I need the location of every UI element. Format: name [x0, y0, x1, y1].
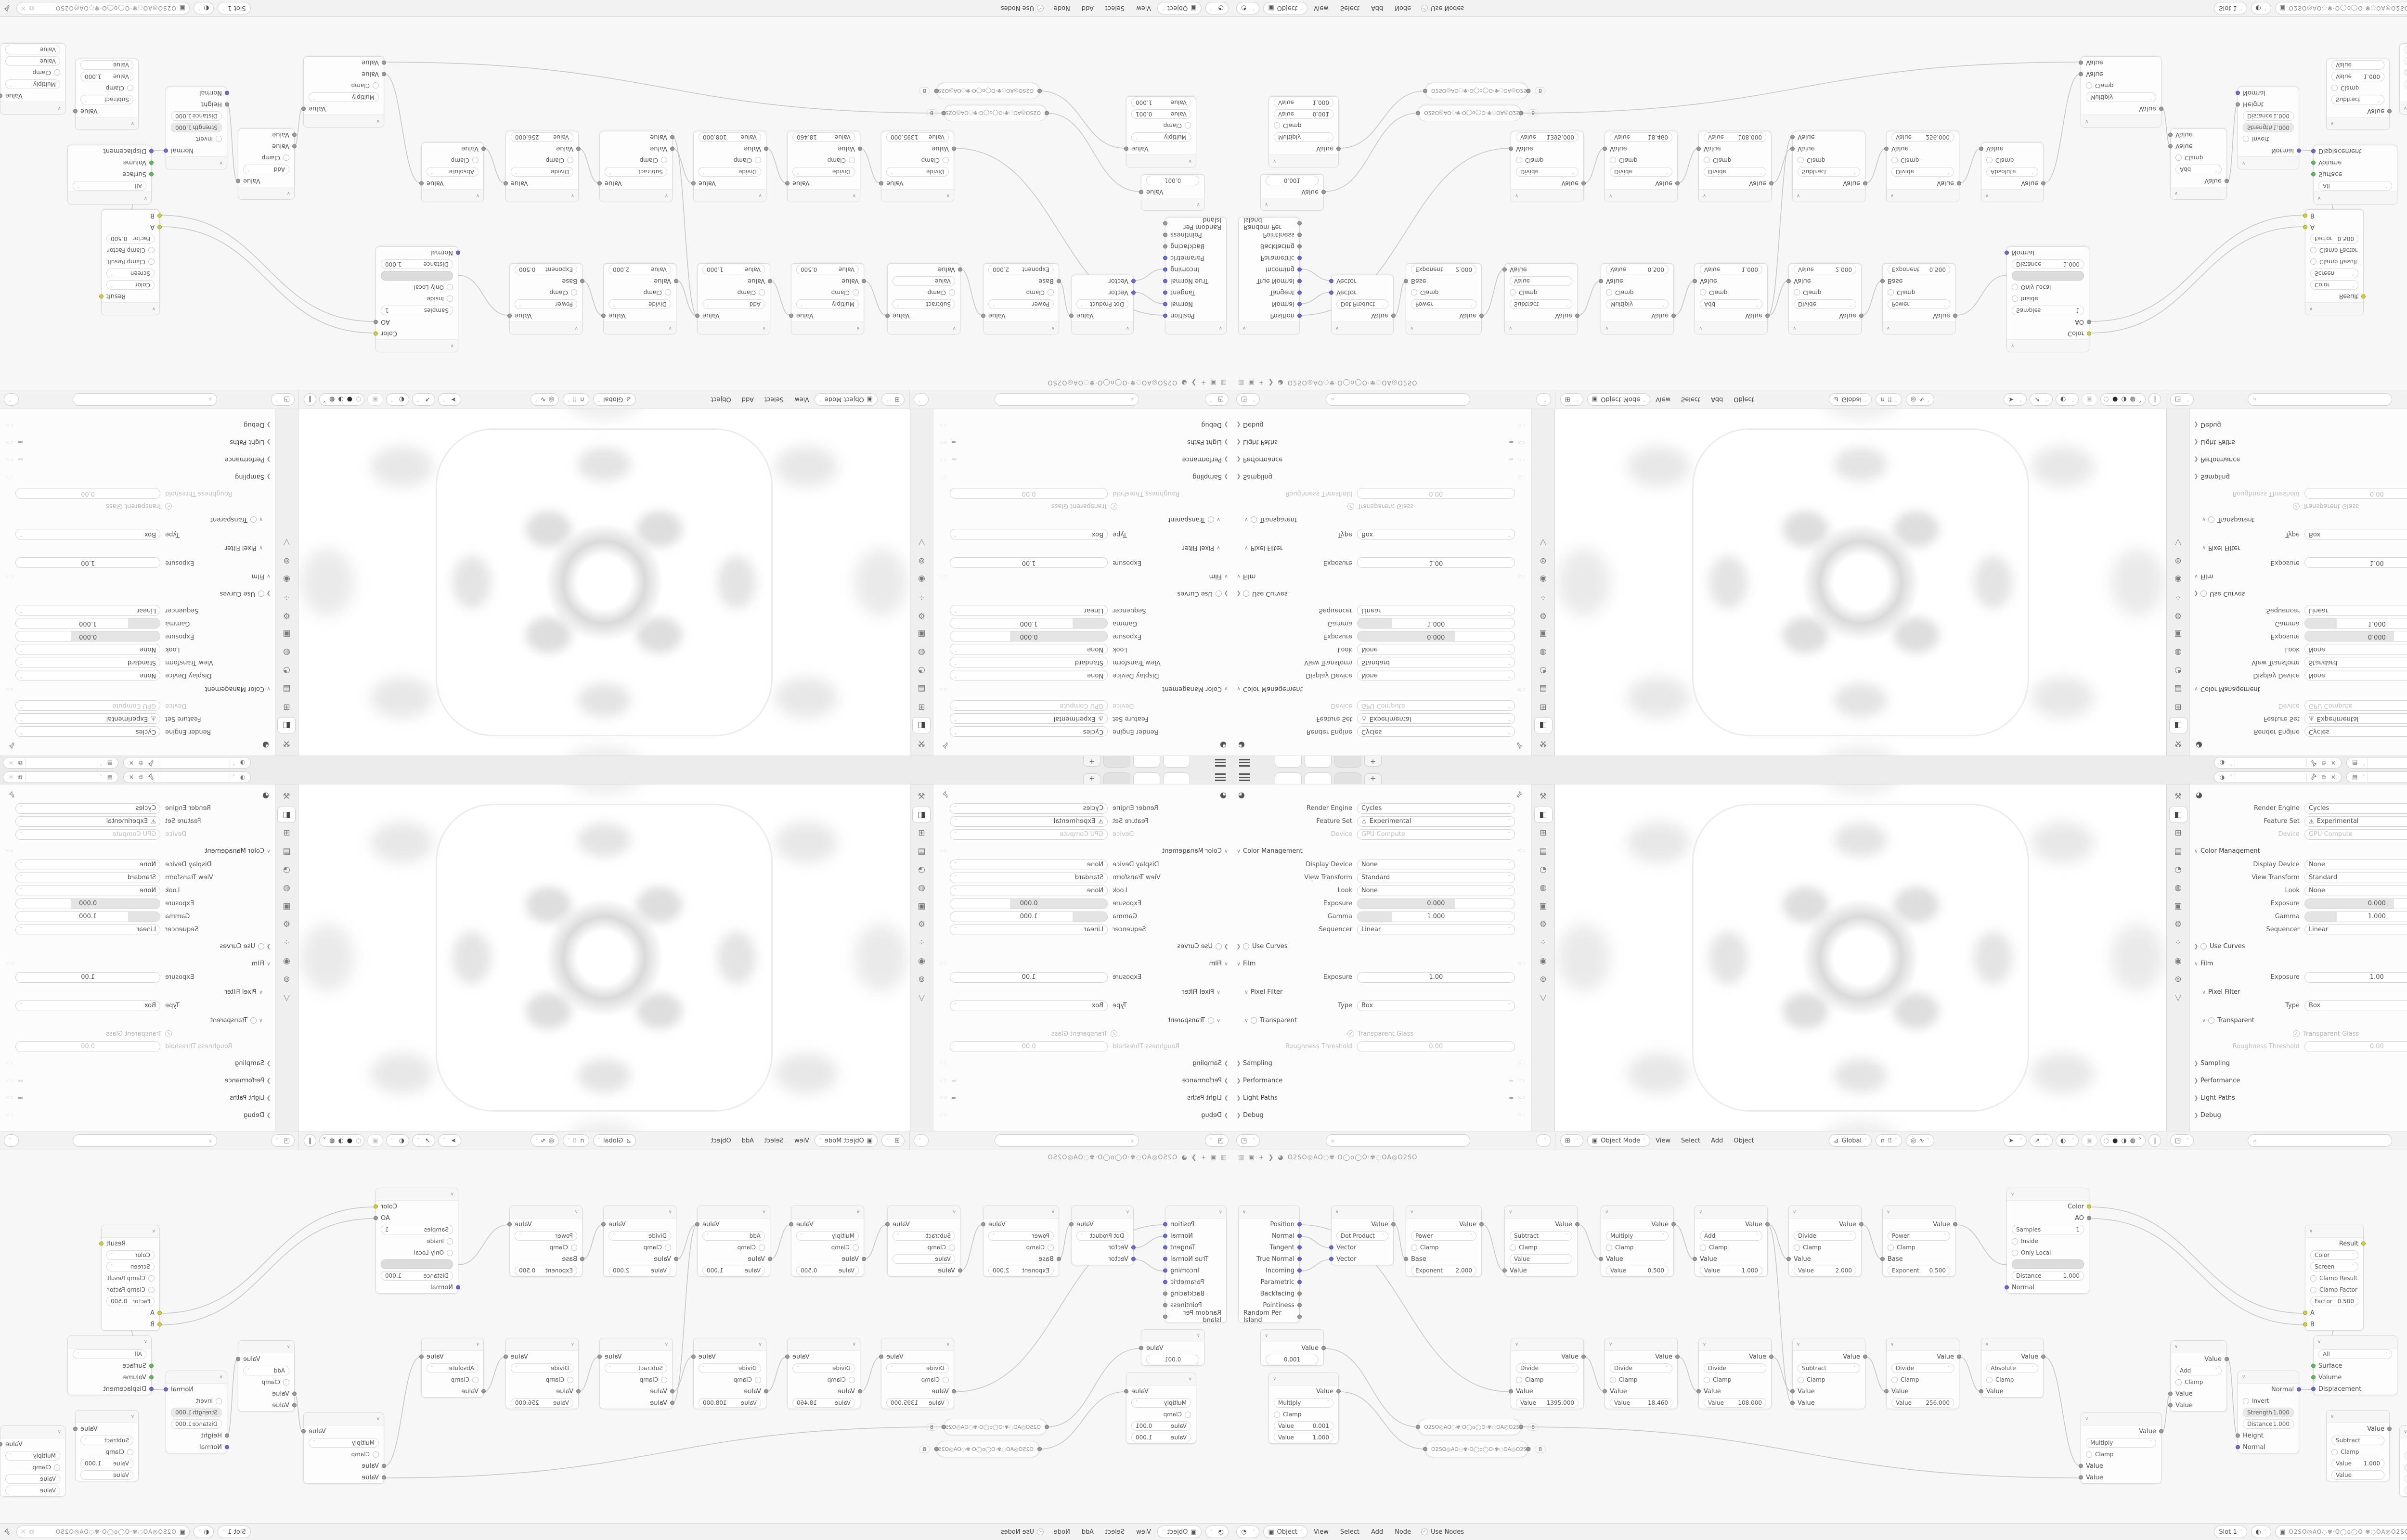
checkbox-clamp[interactable]: Clamp — [2175, 154, 2203, 161]
node[interactable]: ∨Value0.001 — [1141, 174, 1204, 211]
menu-object[interactable]: Object — [705, 1137, 736, 1144]
node-header[interactable]: ∨ — [422, 1338, 483, 1351]
node[interactable]: ∨ValueSubtract˅ClampValue1.000Value — [2326, 1410, 2390, 1481]
output-socket[interactable] — [2087, 332, 2091, 336]
panel-header-light-paths[interactable]: ❯Light Paths≔⁙⁙ — [938, 1091, 1230, 1105]
collapsed-group-node[interactable]: O2SO◎AO◌✾·O◯o◯O·✾◌OA◎O2SO8 — [1425, 1441, 1528, 1457]
node[interactable]: ∨ValueAbsolute˅ClampValue — [421, 1338, 484, 1398]
output-socket[interactable] — [597, 1355, 602, 1359]
shading-rendered-icon[interactable]: ◍ — [2130, 1137, 2135, 1144]
slider-gamma[interactable]: 1.000 — [950, 911, 1108, 922]
select-type[interactable]: Box˅ — [950, 529, 1108, 540]
checkbox-clamp[interactable]: Clamp — [1700, 289, 1727, 296]
checkbox-clamp[interactable]: Clamp — [2331, 1449, 2359, 1455]
pin-icon[interactable] — [942, 742, 950, 749]
panel-header-color-management[interactable]: ∨Color Management⁙⁙ — [2192, 844, 2407, 858]
material-id-selector[interactable]: ◑ ˅ ⧉ ✕ — [2214, 771, 2342, 783]
node-select[interactable]: Multiply˅ — [2405, 79, 2407, 89]
node-header[interactable]: ∨ — [304, 115, 384, 127]
shader-node-editor[interactable]: ▥ ▣ + ❯ ◕ O2SO◎AO◌✾·O◯o◯O·✾◌OA◎O2SO ∨Pos… — [1232, 17, 2407, 390]
input-socket[interactable] — [292, 1392, 297, 1396]
checkbox-clamp[interactable]: Clamp — [2086, 1451, 2113, 1458]
checkbox-clamp[interactable]: Clamp — [1411, 1244, 1438, 1251]
search-input[interactable]: ⌕ — [2248, 1134, 2392, 1147]
checkbox-invert[interactable]: Invert — [2243, 1398, 2269, 1404]
output-socket[interactable] — [1139, 190, 1143, 194]
field-distance[interactable]: Distance1.000 — [2243, 1419, 2294, 1429]
panel-header-performance[interactable]: ❯Performance≔⁙⁙ — [938, 1073, 1230, 1088]
output-socket[interactable] — [1139, 1346, 1143, 1350]
node[interactable]: ∨All˅SurfaceVolumeDisplacement — [67, 1335, 152, 1395]
output-socket[interactable] — [981, 314, 985, 318]
checkbox-clamp[interactable]: Clamp — [640, 157, 667, 164]
gizmo-dropdown[interactable]: ↗ ˅ — [2030, 1134, 2053, 1147]
node-select[interactable]: Divide˅ — [699, 1363, 761, 1373]
panel-header-use-curves[interactable]: ❯Use Curves — [938, 939, 1230, 953]
checkbox-clamp[interactable]: Clamp — [738, 289, 765, 296]
output-socket[interactable] — [1163, 1245, 1167, 1250]
properties-tab-data[interactable]: ▽ — [278, 534, 296, 551]
properties-tab-render[interactable]: ◧ — [2169, 717, 2187, 733]
node[interactable]: ∨ValueMultiply˅ClampValueValue — [303, 56, 384, 128]
select-render-engine[interactable]: Cycles˅ — [2304, 727, 2407, 737]
input-socket[interactable] — [670, 1401, 674, 1405]
shading-solid-icon[interactable]: ● — [347, 1137, 352, 1144]
output-socket[interactable] — [1957, 181, 1961, 186]
node[interactable]: ∨ValueSubtract˅ClampValueValue — [599, 131, 673, 202]
properties-tab-output[interactable]: ⊞ — [278, 699, 296, 715]
input-socket[interactable] — [2168, 144, 2173, 149]
field-value[interactable]: Value — [80, 1470, 133, 1480]
field-value[interactable]: Value1.000 — [1700, 1266, 1762, 1275]
shader-type-dropdown[interactable]: ▣ Object ˅ — [1157, 1526, 1202, 1538]
menu-view[interactable]: View — [1650, 396, 1676, 403]
properties-tab-view-layer[interactable]: ▤ — [278, 843, 296, 860]
node[interactable]: ∨ResultColor˅Screen˅Clamp ResultClamp Fa… — [2305, 1225, 2364, 1331]
panel-header-light-paths[interactable]: ❯Light Paths≔⁙⁙ — [2192, 435, 2407, 449]
panel-header-sampling[interactable]: ❯Sampling⁙⁙ — [938, 1056, 1230, 1070]
panel-header-use-curves[interactable]: ❯Use Curves — [2192, 939, 2407, 953]
copy-icon[interactable]: ⧉ — [2319, 759, 2329, 767]
node-header[interactable]: ∨ — [881, 1338, 954, 1351]
node-select[interactable]: Add˅ — [702, 299, 765, 309]
checkbox-clamp[interactable]: Clamp — [451, 1376, 479, 1383]
select-view-transform[interactable]: Standard˅ — [15, 657, 160, 668]
field-value[interactable]: Value108.000 — [699, 1398, 761, 1408]
node[interactable]: ∨ValueMultiply˅ClampValueValue — [2081, 1412, 2161, 1484]
properties-editor-type-button[interactable]: ◳ ˅ — [2170, 393, 2194, 406]
shading-solid-icon[interactable]: ● — [2112, 1137, 2118, 1144]
node[interactable]: ∨ValueDivide˅ClampValueValue108.000 — [693, 1338, 766, 1409]
input-socket[interactable] — [1790, 135, 1795, 140]
color-swatch[interactable] — [381, 271, 453, 281]
use-nodes-checkbox[interactable]: ✓ Use Nodes — [1001, 5, 1044, 12]
material-sphere-icon[interactable]: ◑ — [2217, 759, 2227, 766]
properties-tab-output[interactable]: ⊞ — [1534, 825, 1553, 841]
node-select[interactable]: Power˅ — [515, 1231, 577, 1241]
add-workspace-button[interactable]: + — [1083, 773, 1100, 784]
panel-header-sampling[interactable]: ❯Sampling⁙⁙ — [5, 1056, 273, 1070]
menu-view[interactable]: View — [1308, 1528, 1334, 1536]
node-header[interactable]: ∨ — [510, 1206, 582, 1219]
node-select[interactable]: Multiply˅ — [1131, 132, 1191, 142]
properties-tab-scene[interactable]: ◔ — [1534, 662, 1553, 679]
output-socket[interactable] — [2159, 107, 2163, 111]
properties-tab-scene[interactable]: ◔ — [278, 662, 296, 679]
properties-tab-constraints[interactable]: ⊚ — [278, 971, 296, 988]
field-value[interactable]: Value108.000 — [1704, 132, 1766, 142]
input-socket[interactable] — [225, 91, 229, 95]
image-id-selector[interactable]: ▤ ˅ ⧉ ✕ — [2346, 757, 2407, 769]
output-socket[interactable] — [1163, 1269, 1167, 1273]
input-socket[interactable] — [2236, 91, 2240, 95]
material-name-field[interactable] — [2235, 773, 2307, 782]
checkbox-clamp[interactable]: Clamp — [1606, 289, 1633, 296]
output-socket[interactable] — [2297, 1387, 2301, 1392]
panel-header-sampling[interactable]: ❯Sampling⁙⁙ — [2192, 470, 2407, 484]
menu-select[interactable]: Select — [1335, 1528, 1365, 1536]
input-socket[interactable] — [1131, 1245, 1136, 1250]
workspace-tab[interactable] — [1163, 772, 1190, 784]
panel-header-color-management[interactable]: ∨Color Management⁙⁙ — [1234, 844, 1527, 858]
checkbox-clamp[interactable]: Clamp — [1026, 1244, 1054, 1251]
slider-gamma[interactable]: 1.000 — [1357, 618, 1515, 629]
checkbox-clamp[interactable]: Clamp — [1274, 122, 1301, 129]
output-socket[interactable] — [1163, 1315, 1167, 1319]
properties-editor-type-button[interactable]: ◳ ˅ — [2170, 1134, 2194, 1147]
node[interactable]: ∨ValueMultiply˅ClampValue0.001Value1.000 — [1126, 1373, 1196, 1444]
output-socket[interactable] — [1297, 256, 1302, 260]
checkbox-clamp[interactable]: Clamp — [644, 289, 671, 296]
properties-tab-constraints[interactable]: ⊚ — [913, 552, 931, 569]
properties-tab-output[interactable]: ⊞ — [913, 825, 931, 841]
node-select[interactable]: Divide˅ — [699, 167, 761, 177]
field-value[interactable]: Value1.000 — [80, 1459, 133, 1468]
checkbox-clamp[interactable]: Clamp — [1891, 157, 1919, 164]
node-select[interactable]: Power˅ — [1888, 1231, 1950, 1241]
output-socket[interactable] — [1163, 1234, 1167, 1238]
field-strength[interactable]: Strength1.000 — [2243, 123, 2294, 132]
image-icon[interactable]: ▤ — [2350, 774, 2360, 781]
node-header[interactable]: ∨ — [2305, 302, 2363, 315]
unlink-icon[interactable]: ✕ — [21, 5, 26, 12]
properties-tab-tool[interactable]: ⚒ — [1534, 788, 1553, 805]
select-tool-dropdown[interactable]: ➤ ˅ — [438, 393, 461, 406]
field-value[interactable]: Value1.000 — [1131, 1433, 1191, 1442]
proportional-edit-toggle[interactable]: ◎ ∿ ˅ — [1906, 393, 1934, 406]
output-socket[interactable] — [1297, 1269, 1302, 1273]
select-sequencer[interactable]: Linear˅ — [2304, 924, 2407, 935]
select-feature-set[interactable]: ⚠Experimental˅ — [15, 714, 160, 724]
node-header[interactable]: ∨ — [888, 321, 960, 334]
search-input[interactable]: ⌕ — [1326, 1134, 1470, 1147]
node-header[interactable]: ∨ — [788, 189, 860, 202]
node-header[interactable]: ∨ — [2171, 187, 2226, 199]
properties-editor-type-button[interactable]: ◳ ˅ — [271, 393, 295, 406]
output-socket[interactable] — [695, 314, 699, 318]
node[interactable]: ∨ValueSubtract˅ClampValueValue — [1792, 131, 1865, 202]
node-header[interactable]: ∨ — [506, 1338, 578, 1351]
panel-header-light-paths[interactable]: ❯Light Paths≔⁙⁙ — [5, 1091, 273, 1105]
output-socket[interactable] — [2087, 320, 2091, 324]
input-socket[interactable] — [670, 1389, 674, 1394]
shading-rendered-icon[interactable]: ◍ — [329, 396, 335, 403]
select-display-device[interactable]: None˅ — [15, 670, 160, 681]
panel-header-color-management[interactable]: ∨Color Management⁙⁙ — [938, 844, 1230, 858]
radio-toggle[interactable] — [2200, 591, 2207, 597]
output-socket[interactable] — [1765, 314, 1770, 318]
node[interactable]: ∨ValueDivide˅ClampValueValue18.460 — [1605, 1338, 1678, 1409]
select-device[interactable]: GPU Compute˅ — [2304, 701, 2407, 711]
properties-tab-tool[interactable]: ⚒ — [278, 735, 296, 752]
select-display-device[interactable]: None˅ — [2304, 860, 2407, 870]
output-socket[interactable] — [1163, 314, 1167, 318]
node-header[interactable]: ∨ — [694, 1338, 766, 1351]
panel-header-sampling[interactable]: ❯Sampling⁙⁙ — [938, 470, 1230, 484]
field-factor[interactable]: Factor0.500 — [2310, 234, 2358, 244]
select-feature-set[interactable]: ⚠Experimental˅ — [2304, 714, 2407, 724]
properties-tab-render[interactable]: ◧ — [913, 807, 931, 823]
node-header[interactable]: ∨ — [2238, 156, 2299, 169]
node-select[interactable]: Multiply˅ — [2086, 1438, 2156, 1448]
viewport-3d[interactable] — [1555, 784, 2166, 1131]
node[interactable]: ∨ColorAOSamples1InsideOnly LocalDistance… — [2006, 246, 2089, 352]
field-value[interactable]: Value — [2331, 60, 2384, 70]
node-select[interactable]: Power˅ — [1411, 299, 1476, 309]
node[interactable]: ∨ValueMultiply˅ClampValueValue0.500 — [791, 263, 864, 334]
input-socket[interactable] — [1404, 1257, 1408, 1261]
chevron-down-icon[interactable]: ˅ — [230, 774, 238, 781]
properties-tab-physics[interactable]: ◉ — [278, 571, 296, 587]
output-socket[interactable] — [1336, 1389, 1341, 1394]
pin-icon[interactable] — [2307, 773, 2319, 782]
output-socket[interactable] — [1391, 1222, 1396, 1227]
properties-tab-modifiers[interactable]: ⚙ — [278, 607, 296, 624]
pin-icon[interactable] — [4, 1528, 12, 1536]
input-socket[interactable] — [1329, 1257, 1333, 1261]
properties-tab-data[interactable]: ▽ — [278, 989, 296, 1006]
panel-header-performance[interactable]: ❯Performance≔⁙⁙ — [2192, 1073, 2407, 1088]
radio-toggle[interactable] — [258, 591, 264, 597]
select-look[interactable]: None˅ — [15, 885, 160, 896]
field-value[interactable]: Value1395.000 — [886, 132, 949, 142]
properties-tab-output[interactable]: ⊞ — [2169, 699, 2187, 715]
node[interactable]: ∨ResultColor˅Screen˅Clamp ResultClamp Fa… — [2305, 209, 2364, 315]
select-type[interactable]: Box˅ — [2304, 1001, 2407, 1011]
select-render-engine[interactable]: Cycles˅ — [950, 803, 1108, 814]
output-socket[interactable] — [789, 314, 793, 318]
properties-tab-scene[interactable]: ◔ — [1534, 861, 1553, 878]
checkbox-transparent-glass[interactable]: ✓Transparent Glass — [5, 500, 273, 513]
output-socket[interactable] — [236, 179, 240, 183]
input-socket[interactable] — [149, 149, 154, 154]
overlays-dropdown[interactable]: ◐ ˅ — [2056, 393, 2079, 406]
node-header[interactable]: ∨ — [1072, 1206, 1133, 1219]
input-socket[interactable] — [952, 1389, 956, 1394]
output-socket[interactable] — [1575, 1222, 1579, 1227]
menu-add[interactable]: Add — [1706, 396, 1728, 403]
viewport-editor-type-button[interactable]: ⊞ ˅ — [881, 393, 905, 406]
node[interactable]: ∨All˅SurfaceVolumeDisplacement — [2313, 145, 2397, 205]
node-header[interactable]: ∨ — [1981, 1338, 2043, 1351]
output-socket[interactable] — [507, 314, 512, 318]
checkbox-clamp[interactable]: Clamp — [831, 289, 859, 296]
menu-icon[interactable] — [1239, 773, 1250, 781]
output-socket[interactable] — [785, 1355, 789, 1359]
node[interactable]: ∨ValueDot Product˅VectorVector — [1331, 1206, 1394, 1265]
checkbox-clamp[interactable]: Clamp — [2405, 69, 2407, 76]
output-socket[interactable] — [2361, 295, 2366, 299]
shading-material-icon[interactable]: ◑ — [2121, 1137, 2126, 1144]
checkbox-clamp[interactable]: Clamp — [106, 1449, 133, 1455]
slider-gamma[interactable]: 1.000 — [1357, 911, 1515, 922]
shading-wireframe-icon[interactable]: ◌ — [2104, 396, 2109, 403]
input-socket[interactable] — [1404, 279, 1408, 283]
slider-exposure[interactable]: 0.000 — [1357, 631, 1515, 642]
node-select[interactable]: Multiply˅ — [1131, 1398, 1191, 1408]
node-header[interactable]: ∨ — [1789, 1206, 1861, 1219]
node-header[interactable]: ∨ — [422, 189, 483, 202]
copy-icon[interactable]: ⧉ — [29, 1528, 34, 1536]
input-socket[interactable] — [1057, 1257, 1061, 1261]
viewport-editor-type-button[interactable]: ⊞ ˅ — [1560, 393, 1583, 406]
checkbox-inside[interactable]: Inside — [2012, 295, 2038, 302]
properties-editor-type-button[interactable]: ◳ ˅ — [1236, 393, 1260, 406]
panel-header-debug[interactable]: ❯Debug⁙⁙ — [2192, 418, 2407, 432]
field-value[interactable]: Value — [1510, 1254, 1572, 1264]
add-workspace-button[interactable]: + — [1083, 756, 1100, 767]
select-view-transform[interactable]: Standard˅ — [1357, 657, 1515, 668]
output-socket[interactable] — [885, 314, 890, 318]
panel-header-pixel-filter[interactable]: ∨Pixel Filter — [1242, 985, 1527, 999]
output-socket[interactable] — [1297, 1245, 1302, 1250]
node-header[interactable]: ∨ — [984, 321, 1059, 334]
node-select[interactable]: Divide˅ — [511, 1363, 573, 1373]
add-workspace-button[interactable]: + — [1364, 773, 1382, 784]
properties-tab-tool[interactable]: ⚒ — [2169, 735, 2187, 752]
transform-orientation-dropdown[interactable]: ⊿ Global ˅ — [593, 1134, 636, 1147]
input-socket[interactable] — [1131, 291, 1136, 295]
node-editor-type-button[interactable]: ◔ ˅ — [1236, 2, 1259, 14]
field-exponent[interactable]: Exponent0.500 — [1888, 1266, 1950, 1275]
select-feature-set[interactable]: ⚠Experimental˅ — [2304, 816, 2407, 827]
panel-header-pixel-filter[interactable]: ∨Pixel Filter — [938, 541, 1223, 555]
field-value[interactable]: Value — [2405, 45, 2407, 54]
panel-header-transparent[interactable]: ∨Transparent — [1242, 513, 1527, 527]
output-socket[interactable] — [1863, 181, 1867, 186]
node-header[interactable]: ∨ — [1789, 321, 1861, 334]
properties-tab-data[interactable]: ▽ — [1534, 989, 1553, 1006]
field-value[interactable]: Value — [2405, 56, 2407, 66]
shader-node-editor[interactable]: ▥ ▣ + ❯ ◕ O2SO◎AO◌✾·O◯o◯O·✾◌OA◎O2SO ∨Pos… — [0, 17, 1232, 390]
node[interactable]: ∨ValueAdd˅ClampValueValue1.000 — [697, 263, 770, 334]
output-socket[interactable] — [691, 181, 696, 186]
checkbox-only-local[interactable]: Only Local — [414, 1249, 453, 1256]
properties-tab-view-layer[interactable]: ▤ — [2169, 680, 2187, 697]
node[interactable]: ∨ValuePower˅ClampBaseExponent2.000 — [983, 1206, 1059, 1277]
search-input[interactable]: ⌕ — [995, 1134, 1139, 1147]
chevron-down-icon[interactable]: ˅ — [230, 759, 238, 766]
checkbox-clamp[interactable]: Clamp — [550, 289, 577, 296]
output-socket[interactable] — [601, 314, 606, 318]
field-value[interactable]: Value1395.000 — [1516, 132, 1579, 142]
input-socket[interactable] — [481, 147, 486, 151]
field-distance[interactable]: Distance1.000 — [171, 111, 222, 121]
checkbox-clamp[interactable]: Clamp — [1164, 1411, 1191, 1418]
radio-toggle[interactable] — [1208, 517, 1214, 523]
output-socket[interactable] — [301, 1429, 306, 1434]
input-socket[interactable] — [1884, 1389, 1889, 1394]
node[interactable]: ∨ValuePower˅ClampBaseExponent0.500 — [1882, 1206, 1955, 1277]
panel-header-transparent[interactable]: ∨Transparent — [2200, 1013, 2407, 1027]
field-factor[interactable]: Factor0.500 — [2310, 1296, 2358, 1306]
node-header[interactable]: ∨ — [984, 1206, 1059, 1219]
checkbox-clamp[interactable]: Clamp — [1798, 157, 1825, 164]
output-socket[interactable] — [1581, 181, 1586, 186]
checkbox-clamp[interactable]: Clamp — [546, 1376, 573, 1383]
checkbox-clamp[interactable]: Clamp — [1794, 1244, 1821, 1251]
node[interactable]: ∨Value0.001 — [1260, 1329, 1324, 1366]
field-value[interactable]: Value18.460 — [1610, 132, 1672, 142]
output-socket[interactable] — [164, 1387, 168, 1392]
output-socket[interactable] — [374, 1205, 378, 1209]
menu-view[interactable]: View — [1308, 5, 1334, 12]
copy-icon[interactable]: ⧉ — [136, 759, 145, 767]
material-name-field[interactable] — [2235, 758, 2307, 767]
node-header[interactable]: ∨ — [1126, 154, 1196, 167]
select-display-device[interactable]: None˅ — [950, 670, 1108, 681]
checkbox-clamp[interactable]: Clamp — [1516, 157, 1543, 164]
select-look[interactable]: None˅ — [950, 885, 1108, 896]
node-header[interactable]: ∨ — [2314, 192, 2397, 204]
node-header[interactable]: ∨ — [2238, 1371, 2299, 1384]
panel-header-film[interactable]: ∨Film⁙⁙ — [938, 569, 1230, 584]
properties-tab-particles[interactable]: ⁘ — [278, 935, 296, 951]
output-socket[interactable] — [2297, 149, 2301, 153]
checkbox-clamp[interactable]: Clamp — [351, 82, 379, 89]
field-value[interactable]: Value — [5, 45, 60, 54]
search-input[interactable]: ⌕ — [995, 393, 1139, 406]
node-header[interactable]: ∨ — [2400, 1426, 2407, 1438]
material-name-field[interactable]: ▣ O2SO◎AO◌✾·O◯o◯O·✾◌OA◎O2SO ⧉ ✕ — [2275, 1526, 2407, 1538]
output-socket[interactable] — [1069, 314, 1074, 318]
panel-header-color-management[interactable]: ∨Color Management⁙⁙ — [2192, 682, 2407, 696]
output-socket[interactable] — [1859, 1222, 1863, 1227]
select-display-device[interactable]: None˅ — [1357, 860, 1515, 870]
workspace-tab[interactable] — [1275, 756, 1302, 768]
node[interactable]: ∨ValueDivide˅ClampValueValue1395.000 — [1511, 1338, 1584, 1409]
output-socket[interactable] — [934, 1447, 939, 1451]
panel-header-transparent[interactable]: ∨Transparent — [5, 513, 265, 527]
output-socket[interactable] — [1953, 1222, 1957, 1227]
image-name-field[interactable] — [25, 773, 97, 782]
pin-icon[interactable] — [145, 773, 158, 782]
input-socket[interactable] — [1329, 1245, 1333, 1250]
node[interactable]: ∨ValuePower˅ClampBaseExponent0.500 — [509, 1206, 582, 1277]
field-value[interactable]: Value0.001 — [1131, 109, 1191, 119]
panel-header-film[interactable]: ∨Film⁙⁙ — [5, 569, 273, 584]
checkbox-clamp-result[interactable]: Clamp Result — [2310, 1275, 2357, 1282]
checkbox-clamp[interactable]: Clamp — [1026, 289, 1054, 296]
node-header[interactable]: ∨ — [2314, 1336, 2397, 1348]
pin-icon[interactable] — [4, 4, 12, 12]
input-socket[interactable] — [1416, 111, 1420, 115]
node-select[interactable]: Subtract˅ — [1798, 1363, 1860, 1373]
field-value[interactable]: Value18.460 — [792, 132, 855, 142]
node-select[interactable]: Multiply˅ — [2086, 92, 2156, 102]
output-socket[interactable] — [2387, 1427, 2392, 1431]
input-socket[interactable] — [1979, 147, 1983, 151]
